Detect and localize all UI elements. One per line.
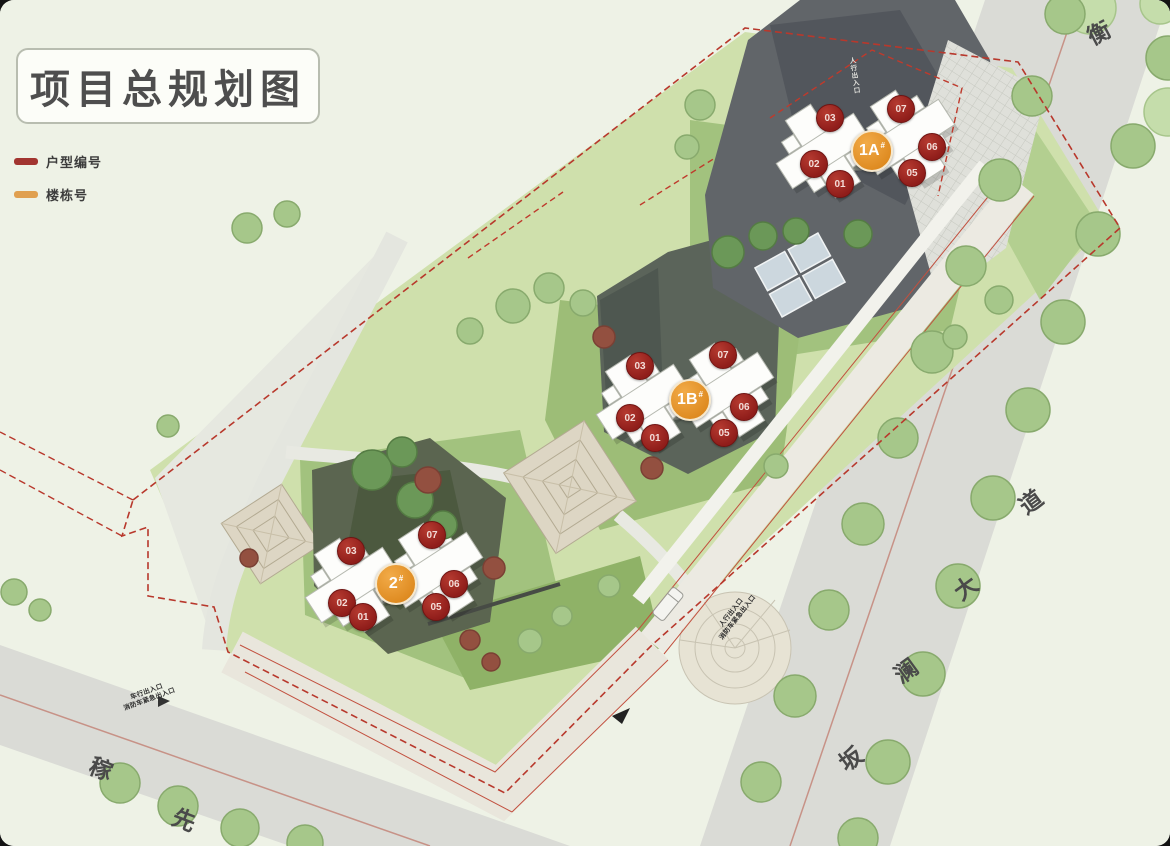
legend: 户型编号 楼栋号 [14,152,102,218]
legend-swatch-orange [14,191,38,198]
unit-badge[interactable]: 07 [418,521,446,549]
unit-badge[interactable]: 05 [422,593,450,621]
page-title: 项目总规划图 [16,48,320,124]
legend-label: 楼栋号 [46,185,88,204]
legend-item-unit: 户型编号 [14,152,102,171]
building-badge-label: 2 [389,575,398,593]
building-badge-label: 1B [677,391,697,409]
unit-badge[interactable]: 06 [730,393,758,421]
legend-item-building: 楼栋号 [14,185,102,204]
building-badge-1a[interactable]: 1A # [851,130,893,172]
unit-badge[interactable]: 01 [826,170,854,198]
building-badge-label: 1A [859,142,879,160]
building-badge-2[interactable]: 2 # [375,563,417,605]
unit-badge[interactable]: 05 [710,419,738,447]
unit-badge[interactable]: 07 [709,341,737,369]
building-badge-mark: # [399,574,403,583]
unit-badge[interactable]: 01 [641,424,669,452]
legend-swatch-red [14,158,38,165]
unit-badge[interactable]: 02 [800,150,828,178]
unit-badge[interactable]: 07 [887,95,915,123]
unit-badge[interactable]: 06 [440,570,468,598]
site-plan: 项目总规划图 户型编号 楼栋号 1A # 1B # 2 # 03 02 01 0… [0,0,1170,846]
site-plan-graphic [0,0,1170,846]
legend-label: 户型编号 [46,152,102,171]
building-badge-1b[interactable]: 1B # [669,379,711,421]
unit-badge[interactable]: 03 [626,352,654,380]
unit-badge[interactable]: 03 [337,537,365,565]
building-badge-mark: # [699,390,703,399]
unit-badge[interactable]: 06 [918,133,946,161]
unit-badge[interactable]: 01 [349,603,377,631]
building-badge-mark: # [881,141,885,150]
unit-badge[interactable]: 05 [898,159,926,187]
unit-badge[interactable]: 02 [616,404,644,432]
unit-badge[interactable]: 03 [816,104,844,132]
